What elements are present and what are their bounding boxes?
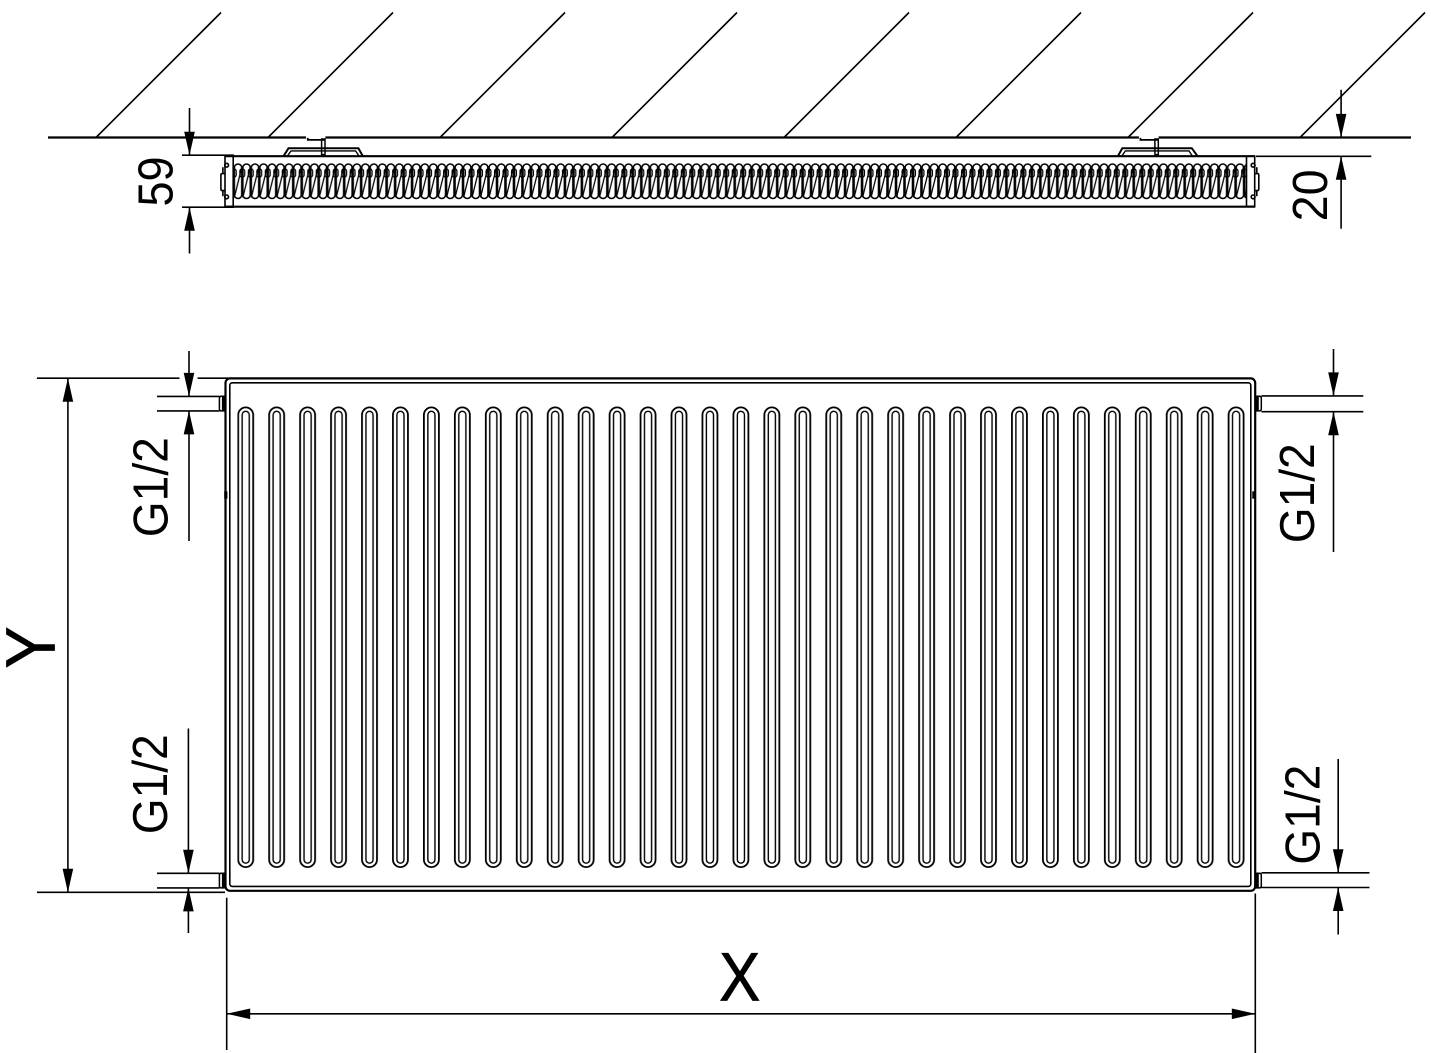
svg-text:X: X [719,939,760,1016]
svg-text:G1/2: G1/2 [1271,443,1325,543]
svg-text:59: 59 [130,157,184,207]
svg-text:G1/2: G1/2 [1277,765,1331,865]
svg-text:G1/2: G1/2 [124,734,178,834]
svg-text:Y: Y [0,627,70,669]
svg-text:G1/2: G1/2 [125,437,179,537]
svg-text:20: 20 [1284,169,1338,221]
